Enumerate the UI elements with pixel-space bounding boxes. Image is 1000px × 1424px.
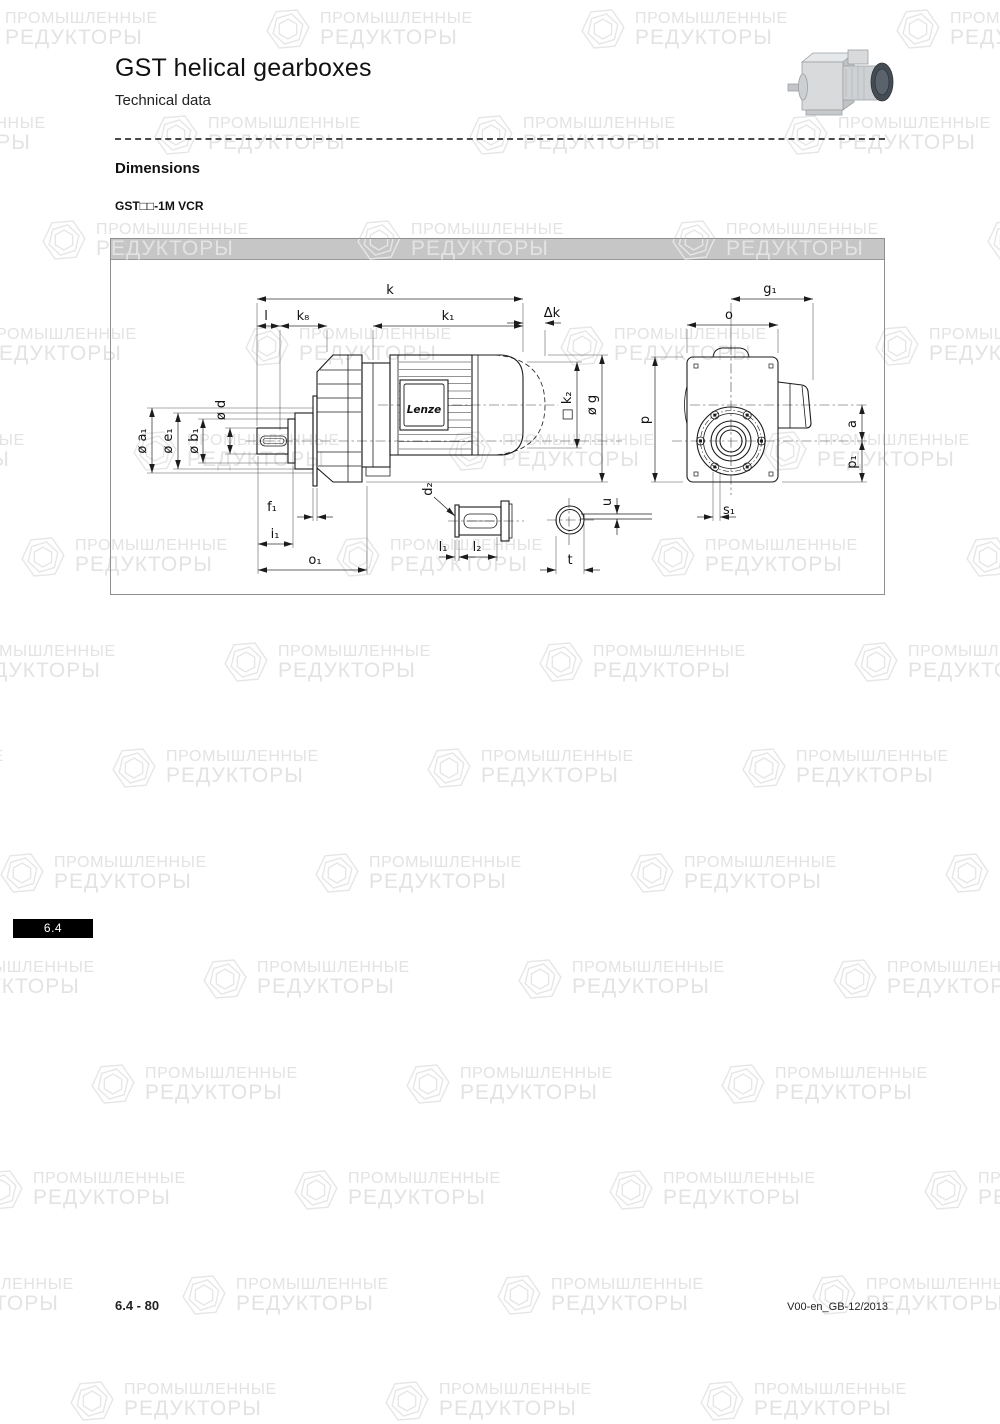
watermark: ПРОМЫШЛЕННЫЕ РЕДУКТОРЫ bbox=[384, 1378, 592, 1424]
watermark: ПРОМЫШЛЕННЫЕ РЕДУКТОРЫ bbox=[741, 745, 949, 791]
watermark: ПРОМЫШЛЕННЫЕ РЕДУКТОРЫ bbox=[944, 850, 1000, 896]
watermark-text: ПРОМЫШЛЕННЫЕ РЕДУКТОРЫ bbox=[0, 748, 4, 787]
watermark: ПРОМЫШЛЕННЫЕ РЕДУКТОРЫ bbox=[265, 6, 473, 52]
footer-page-number: 6.4 - 80 bbox=[115, 1298, 159, 1313]
watermark-line2: РЕДУКТОРЫ bbox=[0, 976, 95, 998]
watermark-line1: ПРОМЫШЛЕННЫЕ bbox=[460, 1065, 613, 1082]
watermark-line1: ПРОМЫШЛЕННЫЕ bbox=[572, 959, 725, 976]
hexagon-swirl-icon bbox=[0, 1167, 24, 1213]
watermark-line2: РЕДУКТОРЫ bbox=[887, 976, 1000, 998]
watermark-line2: РЕДУКТОРЫ bbox=[796, 765, 949, 787]
watermark-line2: РЕДУКТОРЫ bbox=[551, 1293, 704, 1315]
watermark: ПРОМЫШЛЕННЫЕ РЕДУКТОРЫ bbox=[874, 323, 1000, 369]
watermark-text: ПРОМЫШЛЕННЫЕ РЕДУКТОРЫ bbox=[320, 10, 473, 49]
hexagon-swirl-icon bbox=[426, 745, 472, 791]
drawing-panel-border bbox=[110, 238, 885, 595]
watermark-text: ПРОМЫШЛЕННЫЕ РЕДУКТОРЫ bbox=[635, 10, 788, 49]
watermark-line1: ПРОМЫШЛЕННЫЕ bbox=[593, 643, 746, 660]
hexagon-swirl-icon bbox=[496, 1272, 542, 1318]
dashed-divider bbox=[115, 138, 885, 140]
watermark-text: ПРОМЫШЛЕННЫЕ РЕДУКТОРЫ bbox=[0, 1276, 74, 1315]
watermark-line2: РЕДУКТОРЫ bbox=[635, 27, 788, 49]
watermark: ПРОМЫШЛЕННЫЕ РЕДУКТОРЫ bbox=[0, 956, 95, 1002]
watermark-line1: ПРОМЫШЛЕННЫЕ bbox=[54, 854, 207, 871]
watermark-line2: РЕДУКТОРЫ bbox=[0, 132, 46, 154]
watermark-line2: РЕДУКТОРЫ bbox=[33, 1187, 186, 1209]
hexagon-swirl-icon bbox=[293, 1167, 339, 1213]
watermark: ПРОМЫШЛЕННЫЕ РЕДУКТОРЫ bbox=[314, 850, 522, 896]
watermark: ПРОМЫШЛЕННЫЕ РЕДУКТОРЫ bbox=[202, 956, 410, 1002]
watermark-text: ПРОМЫШЛЕННЫЕ РЕДУКТОРЫ bbox=[166, 748, 319, 787]
watermark-line2: РЕДУКТОРЫ bbox=[978, 1187, 1000, 1209]
watermark: ПРОМЫШЛЕННЫЕ РЕДУКТОРЫ bbox=[986, 217, 1000, 263]
watermark-line2: РЕДУКТОРЫ bbox=[775, 1082, 928, 1104]
hexagon-swirl-icon bbox=[223, 639, 269, 685]
watermark-line2: РЕДУКТОРЫ bbox=[523, 132, 676, 154]
watermark-text: ПРОМЫШЛЕННЫЕ РЕДУКТОРЫ bbox=[0, 643, 116, 682]
watermark: ПРОМЫШЛЕННЫЕ РЕДУКТОРЫ bbox=[699, 1378, 907, 1424]
watermark-text: ПРОМЫШЛЕННЫЕ РЕДУКТОРЫ bbox=[5, 10, 158, 49]
section-heading: Dimensions bbox=[115, 160, 200, 177]
watermark: ПРОМЫШЛЕННЫЕ РЕДУКТОРЫ bbox=[832, 956, 1000, 1002]
watermark-line1: ПРОМЫШЛЕННЫЕ bbox=[166, 748, 319, 765]
watermark-line2: РЕДУКТОРЫ bbox=[54, 871, 207, 893]
watermark-line1: ПРОМЫШЛЕННЫЕ bbox=[754, 1381, 907, 1398]
watermark-line2: РЕДУКТОРЫ bbox=[460, 1082, 613, 1104]
hexagon-swirl-icon bbox=[384, 1378, 430, 1424]
watermark-line1: ПРОМЫШЛЕННЫЕ bbox=[866, 1276, 1000, 1293]
watermark-line2: РЕДУКТОРЫ bbox=[278, 660, 431, 682]
watermark-line1: ПРОМЫШЛЕННЫЕ bbox=[684, 854, 837, 871]
watermark: ПРОМЫШЛЕННЫЕ РЕДУКТОРЫ bbox=[629, 850, 837, 896]
page-title: GST helical gearboxes bbox=[115, 54, 372, 83]
hexagon-swirl-icon bbox=[41, 217, 87, 263]
watermark-line2: РЕДУКТОРЫ bbox=[572, 976, 725, 998]
watermark-line1: ПРОМЫШЛЕННЫЕ bbox=[33, 1170, 186, 1187]
watermark-line1: ПРОМЫШЛЕННЫЕ bbox=[481, 748, 634, 765]
watermark-line2: РЕДУКТОРЫ bbox=[348, 1187, 501, 1209]
watermark-line1: ПРОМЫШЛЕННЫЕ bbox=[0, 115, 46, 132]
watermark-text: ПРОМЫШЛЕННЫЕ РЕДУКТОРЫ bbox=[950, 10, 1000, 49]
watermark-line1: ПРОМЫШЛЕННЫЕ bbox=[278, 643, 431, 660]
hexagon-swirl-icon bbox=[153, 112, 199, 158]
watermark: ПРОМЫШЛЕННЫЕ РЕДУКТОРЫ bbox=[853, 639, 1000, 685]
watermark: ПРОМЫШЛЕННЫЕ РЕДУКТОРЫ bbox=[0, 639, 116, 685]
watermark: ПРОМЫШЛЕННЫЕ РЕДУКТОРЫ bbox=[608, 1167, 816, 1213]
watermark-line1: ПРОМЫШЛЕННЫЕ bbox=[726, 221, 879, 238]
hexagon-swirl-icon bbox=[265, 6, 311, 52]
watermark-line1: ПРОМЫШЛЕННЫЕ bbox=[5, 10, 158, 27]
watermark: ПРОМЫШЛЕННЫЕ РЕДУКТОРЫ bbox=[0, 850, 207, 896]
watermark-line1: ПРОМЫШЛЕННЫЕ bbox=[551, 1276, 704, 1293]
watermark-line1: ПРОМЫШЛЕННЫЕ bbox=[663, 1170, 816, 1187]
watermark-line1: ПРОМЫШЛЕННЫЕ bbox=[208, 115, 361, 132]
watermark-text: ПРОМЫШЛЕННЫЕ РЕДУКТОРЫ bbox=[33, 1170, 186, 1209]
watermark-text: ПРОМЫШЛЕННЫЕ РЕДУКТОРЫ bbox=[54, 854, 207, 893]
watermark: ПРОМЫШЛЕННЫЕ РЕДУКТОРЫ bbox=[69, 1378, 277, 1424]
watermark-line2: РЕДУКТОРЫ bbox=[320, 27, 473, 49]
watermark: ПРОМЫШЛЕННЫЕ РЕДУКТОРЫ bbox=[111, 745, 319, 791]
hexagon-swirl-icon bbox=[405, 1061, 451, 1107]
hexagon-swirl-icon bbox=[923, 1167, 969, 1213]
watermark: ПРОМЫШЛЕННЫЕ РЕДУКТОРЫ bbox=[426, 745, 634, 791]
watermark-line1: ПРОМЫШЛЕННЫЕ bbox=[411, 221, 564, 238]
watermark: ПРОМЫШЛЕННЫЕ РЕДУКТОРЫ bbox=[0, 112, 46, 158]
hexagon-swirl-icon bbox=[0, 850, 45, 896]
watermark-line2: РЕДУКТОРЫ bbox=[838, 132, 991, 154]
watermark-line1: ПРОМЫШЛЕННЫЕ bbox=[320, 10, 473, 27]
watermark-text: ПРОМЫШЛЕННЫЕ РЕДУКТОРЫ bbox=[551, 1276, 704, 1315]
watermark-text: ПРОМЫШЛЕННЫЕ РЕДУКТОРЫ bbox=[0, 432, 25, 471]
watermark-text: ПРОМЫШЛЕННЫЕ РЕДУКТОРЫ bbox=[0, 115, 46, 154]
watermark-text: ПРОМЫШЛЕННЫЕ РЕДУКТОРЫ bbox=[236, 1276, 389, 1315]
watermark-text: ПРОМЫШЛЕННЫЕ РЕДУКТОРЫ bbox=[0, 959, 95, 998]
watermark-line2: РЕДУКТОРЫ bbox=[0, 660, 116, 682]
watermark-line1: ПРОМЫШЛЕННЫЕ bbox=[0, 643, 116, 660]
watermark-line2: РЕДУКТОРЫ bbox=[950, 27, 1000, 49]
watermark-line2: РЕДУКТОРЫ bbox=[663, 1187, 816, 1209]
watermark-line1: ПРОМЫШЛЕННЫЕ bbox=[124, 1381, 277, 1398]
watermark-line1: ПРОМЫШЛЕННЫЕ bbox=[369, 854, 522, 871]
hexagon-swirl-icon bbox=[986, 217, 1000, 263]
watermark-text: ПРОМЫШЛЕННЫЕ РЕДУКТОРЫ bbox=[278, 643, 431, 682]
watermark-text: ПРОМЫШЛЕННЫЕ РЕДУКТОРЫ bbox=[775, 1065, 928, 1104]
watermark: ПРОМЫШЛЕННЫЕ РЕДУКТОРЫ bbox=[0, 745, 4, 791]
watermark-text: ПРОМЫШЛЕННЫЕ РЕДУКТОРЫ bbox=[908, 643, 1000, 682]
watermark-text: ПРОМЫШЛЕННЫЕ РЕДУКТОРЫ bbox=[145, 1065, 298, 1104]
watermark-line2: РЕДУКТОРЫ bbox=[5, 27, 158, 49]
watermark: ПРОМЫШЛЕННЫЕ РЕДУКТОРЫ bbox=[720, 1061, 928, 1107]
footer-version: V00-en_GB-12/2013 bbox=[787, 1301, 888, 1313]
watermark-text: ПРОМЫШЛЕННЫЕ РЕДУКТОРЫ bbox=[124, 1381, 277, 1420]
watermark-line1: ПРОМЫШЛЕННЫЕ bbox=[0, 748, 4, 765]
hexagon-swirl-icon bbox=[90, 1061, 136, 1107]
watermark: ПРОМЫШЛЕННЫЕ РЕДУКТОРЫ bbox=[517, 956, 725, 1002]
watermark-line2: РЕДУКТОРЫ bbox=[929, 343, 1000, 365]
hexagon-swirl-icon bbox=[720, 1061, 766, 1107]
watermark-line1: ПРОМЫШЛЕННЫЕ bbox=[348, 1170, 501, 1187]
watermark-line1: ПРОМЫШЛЕННЫЕ bbox=[796, 748, 949, 765]
hexagon-swirl-icon bbox=[629, 850, 675, 896]
watermark-line2: РЕДУКТОРЫ bbox=[236, 1293, 389, 1315]
watermark-text: ПРОМЫШЛЕННЫЕ РЕДУКТОРЫ bbox=[978, 1170, 1000, 1209]
watermark-text: ПРОМЫШЛЕННЫЕ РЕДУКТОРЫ bbox=[754, 1381, 907, 1420]
hexagon-swirl-icon bbox=[580, 6, 626, 52]
watermark-line1: ПРОМЫШЛЕННЫЕ bbox=[439, 1381, 592, 1398]
watermark-line1: ПРОМЫШЛЕННЫЕ bbox=[950, 10, 1000, 27]
page-subtitle: Technical data bbox=[115, 92, 211, 109]
watermark: ПРОМЫШЛЕННЫЕ РЕДУКТОРЫ bbox=[0, 428, 25, 474]
hexagon-swirl-icon bbox=[538, 639, 584, 685]
watermark: ПРОМЫШЛЕННЫЕ РЕДУКТОРЫ bbox=[0, 1167, 186, 1213]
model-label: GST□□-1M VCR bbox=[115, 199, 204, 213]
watermark: ПРОМЫШЛЕННЫЕ РЕДУКТОРЫ bbox=[0, 1272, 74, 1318]
watermark-line1: ПРОМЫШЛЕННЫЕ bbox=[978, 1170, 1000, 1187]
watermark: ПРОМЫШЛЕННЫЕ РЕДУКТОРЫ bbox=[90, 1061, 298, 1107]
watermark-text: ПРОМЫШЛЕННЫЕ РЕДУКТОРЫ bbox=[481, 748, 634, 787]
watermark-line1: ПРОМЫШЛЕННЫЕ bbox=[887, 959, 1000, 976]
watermark-text: ПРОМЫШЛЕННЫЕ РЕДУКТОРЫ bbox=[523, 115, 676, 154]
hexagon-swirl-icon bbox=[468, 112, 514, 158]
watermark-text: ПРОМЫШЛЕННЫЕ РЕДУКТОРЫ bbox=[460, 1065, 613, 1104]
watermark-line2: РЕДУКТОРЫ bbox=[0, 765, 4, 787]
watermark: ПРОМЫШЛЕННЫЕ РЕДУКТОРЫ bbox=[496, 1272, 704, 1318]
watermark-text: ПРОМЫШЛЕННЫЕ РЕДУКТОРЫ bbox=[369, 854, 522, 893]
watermark: ПРОМЫШЛЕННЫЕ РЕДУКТОРЫ bbox=[0, 6, 158, 52]
watermark-line1: ПРОМЫШЛЕННЫЕ bbox=[523, 115, 676, 132]
watermark: ПРОМЫШЛЕННЫЕ РЕДУКТОРЫ bbox=[580, 6, 788, 52]
hexagon-swirl-icon bbox=[69, 1378, 115, 1424]
hexagon-swirl-icon bbox=[20, 534, 66, 580]
hexagon-swirl-icon bbox=[741, 745, 787, 791]
watermark-text: ПРОМЫШЛЕННЫЕ РЕДУКТОРЫ bbox=[348, 1170, 501, 1209]
hexagon-swirl-icon bbox=[853, 639, 899, 685]
watermark-line1: ПРОМЫШЛЕННЫЕ bbox=[0, 432, 25, 449]
watermark-line1: ПРОМЫШЛЕННЫЕ bbox=[96, 221, 249, 238]
watermark-line2: РЕДУКТОРЫ bbox=[124, 1398, 277, 1420]
watermark-line2: РЕДУКТОРЫ bbox=[208, 132, 361, 154]
watermark-line2: РЕДУКТОРЫ bbox=[145, 1082, 298, 1104]
hexagon-swirl-icon bbox=[965, 534, 1000, 580]
catalog-page: ПРОМЫШЛЕННЫЕ РЕДУКТОРЫ ПРОМЫШЛЕННЫЕ РЕДУ… bbox=[0, 0, 1000, 1395]
watermark-line1: ПРОМЫШЛЕННЫЕ bbox=[635, 10, 788, 27]
hexagon-swirl-icon bbox=[517, 956, 563, 1002]
hexagon-swirl-icon bbox=[111, 745, 157, 791]
watermark-text: ПРОМЫШЛЕННЫЕ РЕДУКТОРЫ bbox=[208, 115, 361, 154]
hexagon-swirl-icon bbox=[699, 1378, 745, 1424]
watermark: ПРОМЫШЛЕННЫЕ РЕДУКТОРЫ bbox=[923, 1167, 1000, 1213]
watermark: ПРОМЫШЛЕННЫЕ РЕДУКТОРЫ bbox=[895, 6, 1000, 52]
hexagon-swirl-icon bbox=[181, 1272, 227, 1318]
watermark-line2: РЕДУКТОРЫ bbox=[439, 1398, 592, 1420]
watermark: ПРОМЫШЛЕННЫЕ РЕДУКТОРЫ bbox=[538, 639, 746, 685]
watermark-line2: РЕДУКТОРЫ bbox=[684, 871, 837, 893]
watermark-line1: ПРОМЫШЛЕННЫЕ bbox=[908, 643, 1000, 660]
watermark-line2: РЕДУКТОРЫ bbox=[0, 1293, 74, 1315]
watermark: ПРОМЫШЛЕННЫЕ РЕДУКТОРЫ bbox=[293, 1167, 501, 1213]
watermark-text: ПРОМЫШЛЕННЫЕ РЕДУКТОРЫ bbox=[796, 748, 949, 787]
watermark: ПРОМЫШЛЕННЫЕ РЕДУКТОРЫ bbox=[223, 639, 431, 685]
hexagon-swirl-icon bbox=[608, 1167, 654, 1213]
hexagon-swirl-icon bbox=[944, 850, 990, 896]
chapter-tab: 6.4 bbox=[13, 919, 93, 938]
watermark-text: ПРОМЫШЛЕННЫЕ РЕДУКТОРЫ bbox=[929, 326, 1000, 365]
watermark-text: ПРОМЫШЛЕННЫЕ РЕДУКТОРЫ bbox=[887, 959, 1000, 998]
watermark-line2: РЕДУКТОРЫ bbox=[593, 660, 746, 682]
hexagon-swirl-icon bbox=[202, 956, 248, 1002]
watermark-line1: ПРОМЫШЛЕННЫЕ bbox=[775, 1065, 928, 1082]
watermark-line2: РЕДУКТОРЫ bbox=[908, 660, 1000, 682]
watermark-line1: ПРОМЫШЛЕННЫЕ bbox=[929, 326, 1000, 343]
watermark-line1: ПРОМЫШЛЕННЫЕ bbox=[0, 1276, 74, 1293]
watermark: ПРОМЫШЛЕННЫЕ РЕДУКТОРЫ bbox=[181, 1272, 389, 1318]
watermark-line2: РЕДУКТОРЫ bbox=[481, 765, 634, 787]
watermark-text: ПРОМЫШЛЕННЫЕ РЕДУКТОРЫ bbox=[663, 1170, 816, 1209]
watermark-line2: РЕДУКТОРЫ bbox=[754, 1398, 907, 1420]
product-photo bbox=[786, 42, 908, 129]
hexagon-swirl-icon bbox=[832, 956, 878, 1002]
watermark-text: ПРОМЫШЛЕННЫЕ РЕДУКТОРЫ bbox=[257, 959, 410, 998]
watermark-line1: ПРОМЫШЛЕННЫЕ bbox=[0, 959, 95, 976]
watermark: ПРОМЫШЛЕННЫЕ РЕДУКТОРЫ bbox=[468, 112, 676, 158]
watermark-line2: РЕДУКТОРЫ bbox=[166, 765, 319, 787]
watermark-line1: ПРОМЫШЛЕННЫЕ bbox=[236, 1276, 389, 1293]
watermark-line1: ПРОМЫШЛЕННЫЕ bbox=[257, 959, 410, 976]
watermark: ПРОМЫШЛЕННЫЕ РЕДУКТОРЫ bbox=[153, 112, 361, 158]
watermark: ПРОМЫШЛЕННЫЕ РЕДУКТОРЫ bbox=[965, 534, 1000, 580]
watermark-line2: РЕДУКТОРЫ bbox=[0, 449, 25, 471]
hexagon-swirl-icon bbox=[314, 850, 360, 896]
watermark: ПРОМЫШЛЕННЫЕ РЕДУКТОРЫ bbox=[405, 1061, 613, 1107]
watermark-text: ПРОМЫШЛЕННЫЕ РЕДУКТОРЫ bbox=[439, 1381, 592, 1420]
watermark-text: ПРОМЫШЛЕННЫЕ РЕДУКТОРЫ bbox=[684, 854, 837, 893]
watermark-text: ПРОМЫШЛЕННЫЕ РЕДУКТОРЫ bbox=[572, 959, 725, 998]
watermark-line1: ПРОМЫШЛЕННЫЕ bbox=[145, 1065, 298, 1082]
watermark-line2: РЕДУКТОРЫ bbox=[369, 871, 522, 893]
watermark-line2: РЕДУКТОРЫ bbox=[257, 976, 410, 998]
watermark-text: ПРОМЫШЛЕННЫЕ РЕДУКТОРЫ bbox=[593, 643, 746, 682]
